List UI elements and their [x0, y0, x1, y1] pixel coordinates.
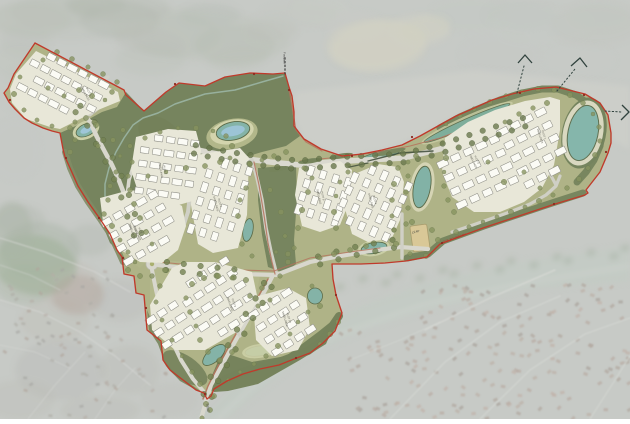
svg-text:Footpath: Footpath: [283, 52, 287, 64]
